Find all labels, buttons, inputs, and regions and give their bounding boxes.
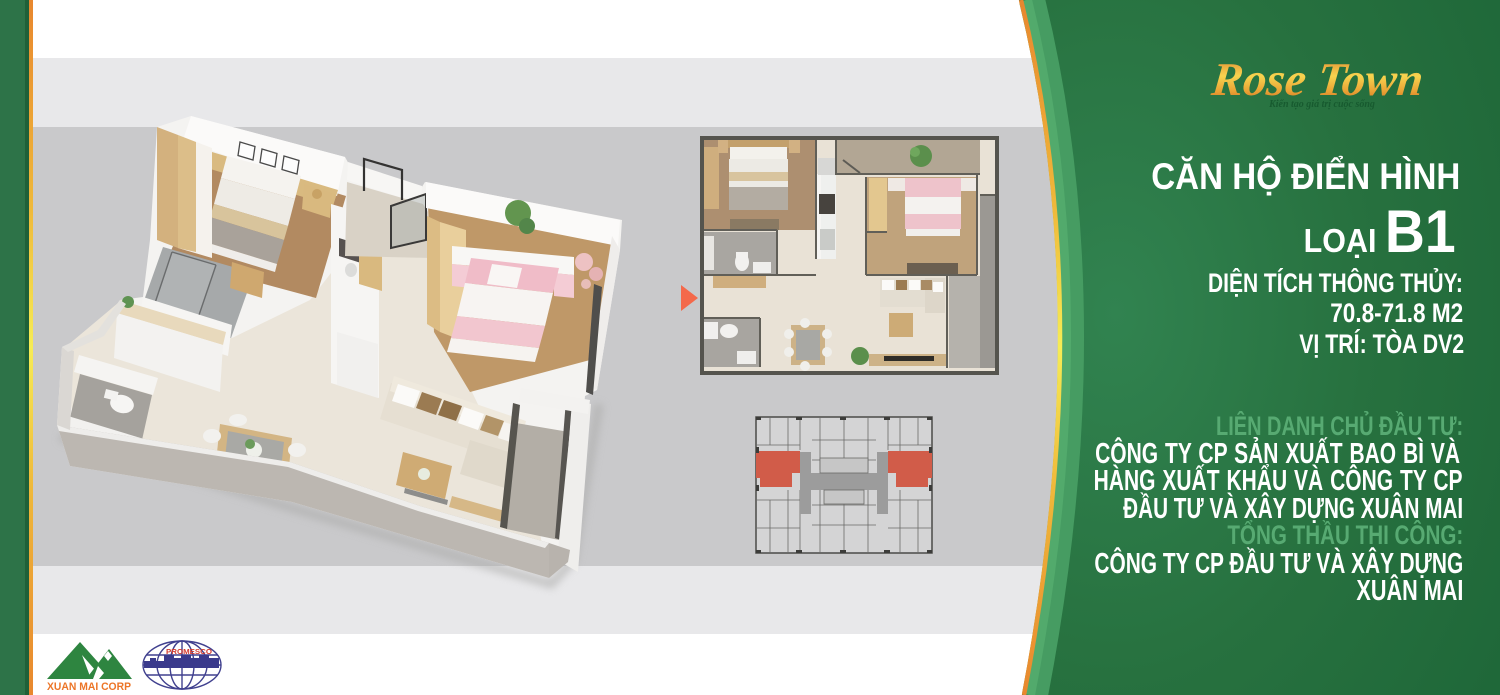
- svg-text:PROMESCO: PROMESCO: [166, 649, 213, 656]
- svg-text:XUAN MAI CORP: XUAN MAI CORP: [47, 681, 131, 693]
- svg-text:Kiến tạo giá trị cuộc sống: Kiến tạo giá trị cuộc sống: [1268, 99, 1375, 110]
